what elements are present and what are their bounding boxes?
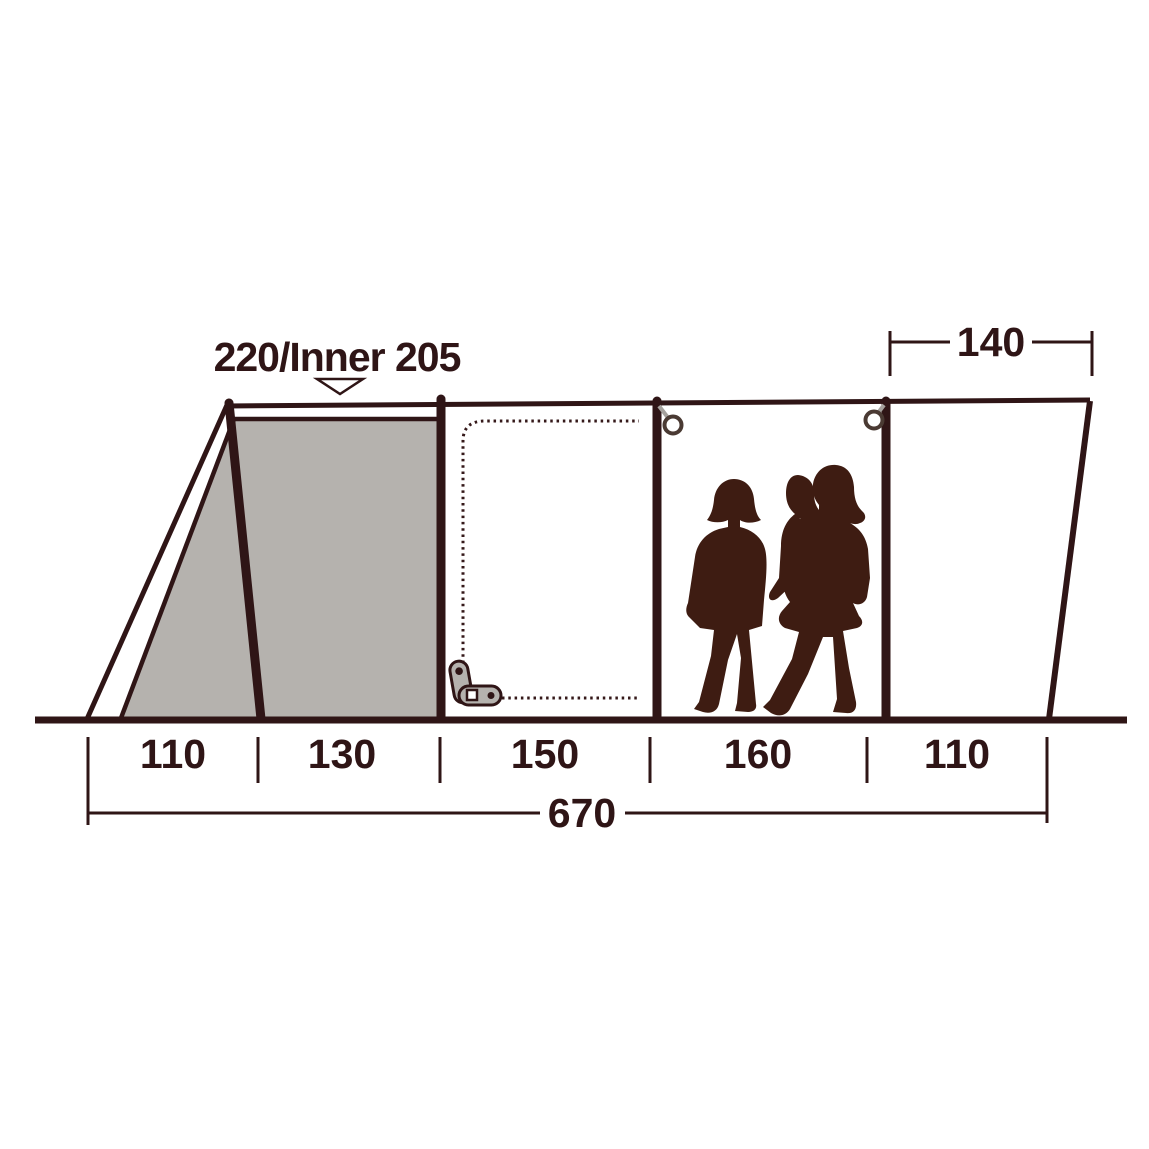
rear-slope-line — [1049, 401, 1090, 719]
ring-circle — [665, 417, 682, 434]
guy-ring-icon-right — [866, 405, 885, 429]
inner-tent-panel — [121, 419, 437, 718]
height-arrow-icon — [317, 379, 363, 394]
tent-dimension-diagram: 220/Inner 205 140 — [0, 0, 1149, 1149]
top-width-dimension: 140 — [890, 319, 1092, 376]
ring-circle — [866, 412, 883, 429]
zipper-pull-icon — [448, 660, 501, 705]
adult-left-silhouette — [686, 479, 766, 713]
zipper-tab-horizontal — [459, 686, 501, 705]
top-width-value: 140 — [957, 319, 1025, 365]
section-labels: 110 130 150 160 110 — [140, 731, 990, 777]
door-outline-dotted-top — [463, 421, 639, 663]
section-label-3: 160 — [724, 731, 792, 777]
section-label-4: 110 — [924, 731, 990, 777]
guy-ring-icon-left — [659, 406, 682, 434]
section-label-1: 130 — [308, 731, 376, 777]
section-label-0: 110 — [140, 731, 206, 777]
diagram-svg: 220/Inner 205 140 — [0, 0, 1149, 1149]
section-label-2: 150 — [511, 731, 579, 777]
total-length-dimension: 670 — [88, 790, 1047, 836]
total-length-value: 670 — [548, 790, 616, 836]
zipper-tab-hole-end — [488, 692, 495, 699]
zipper-tab-square-hole — [467, 690, 477, 700]
height-label: 220/Inner 205 — [214, 334, 461, 380]
